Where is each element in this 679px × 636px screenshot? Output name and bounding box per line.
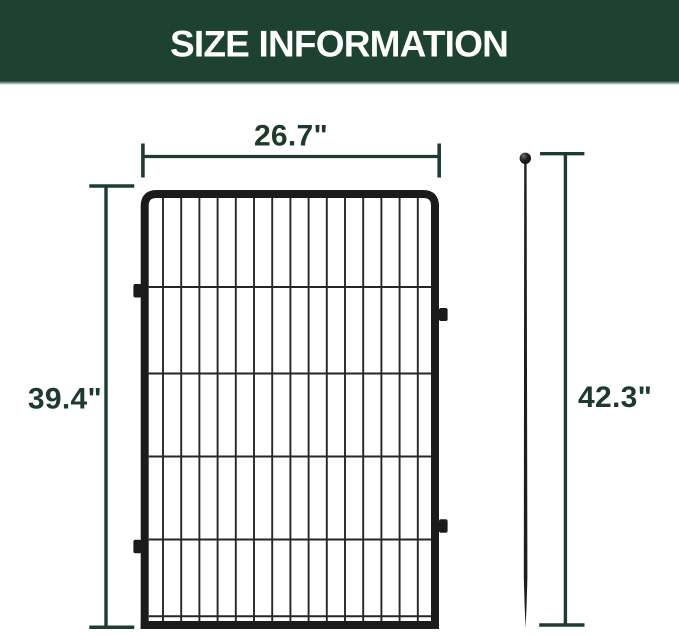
svg-text:42.3": 42.3" xyxy=(578,381,652,414)
svg-text:39.4": 39.4" xyxy=(28,383,102,416)
svg-text:SIZE INFORMATION: SIZE INFORMATION xyxy=(170,24,508,65)
svg-text:26.7": 26.7" xyxy=(254,120,328,153)
